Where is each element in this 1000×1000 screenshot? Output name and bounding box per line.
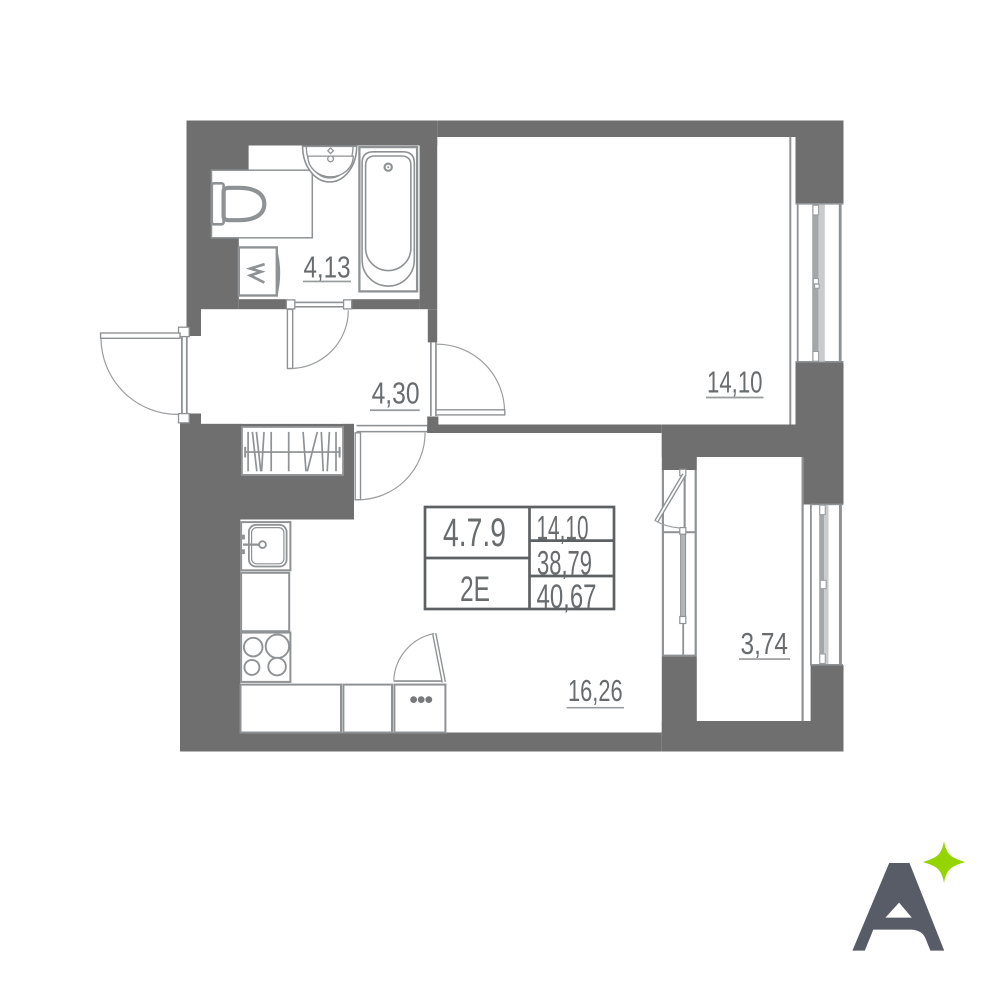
svg-text:2E: 2E — [460, 570, 490, 609]
svg-text:4,30: 4,30 — [372, 376, 420, 411]
svg-text:14,10: 14,10 — [537, 510, 589, 548]
svg-text:38,79: 38,79 — [537, 544, 592, 582]
svg-text:4,13: 4,13 — [304, 250, 351, 285]
svg-text:16,26: 16,26 — [568, 673, 623, 708]
svg-text:3,74: 3,74 — [741, 626, 789, 661]
svg-text:4.7.9: 4.7.9 — [443, 511, 506, 555]
svg-text:14,10: 14,10 — [707, 365, 763, 400]
svg-text:40,67: 40,67 — [537, 578, 597, 616]
